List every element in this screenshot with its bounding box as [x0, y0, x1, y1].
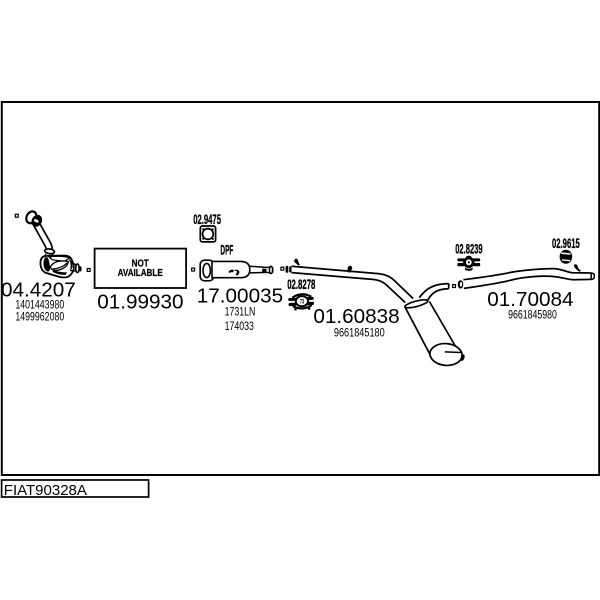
svg-text:73: 73 — [300, 299, 305, 306]
svg-text:FIAT90328A: FIAT90328A — [4, 482, 87, 499]
svg-text:17.00035: 17.00035 — [197, 284, 283, 307]
svg-text:AVAILABLE: AVAILABLE — [118, 267, 163, 278]
svg-text:1731LN: 1731LN — [225, 305, 256, 319]
svg-text:DPF: DPF — [220, 243, 233, 258]
svg-text:9661845980: 9661845980 — [508, 308, 557, 322]
svg-text:01.60838: 01.60838 — [313, 305, 399, 328]
svg-text:02.8239: 02.8239 — [455, 243, 482, 258]
svg-text:174033: 174033 — [225, 319, 254, 333]
svg-text:1499962080: 1499962080 — [15, 310, 64, 324]
svg-text:01.99930: 01.99930 — [97, 290, 183, 313]
svg-text:02.8278: 02.8278 — [287, 278, 315, 293]
svg-text:9661845180: 9661845180 — [334, 326, 385, 340]
svg-text:02.9615: 02.9615 — [552, 237, 580, 252]
